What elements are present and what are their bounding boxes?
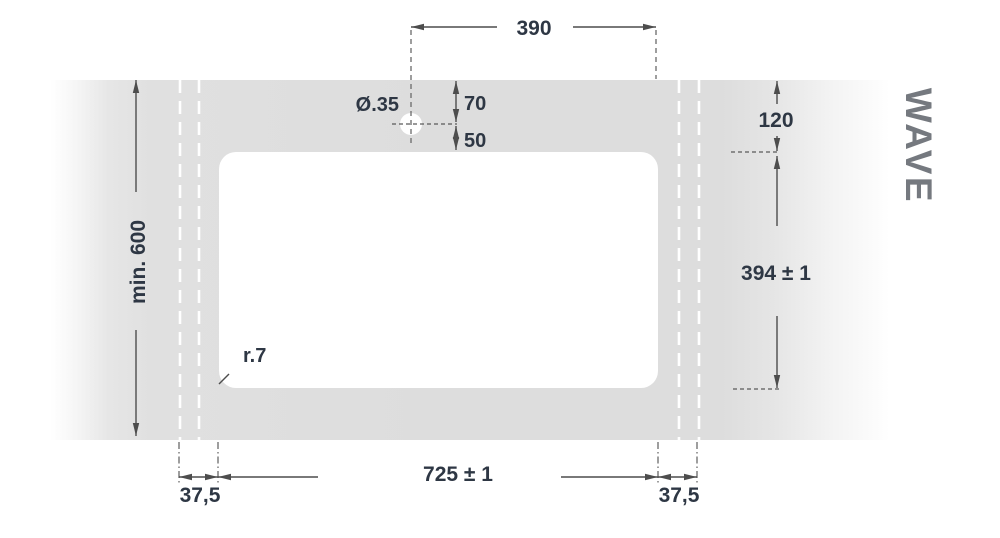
corner-radius-label: r.7 xyxy=(243,345,266,367)
cutout-opening xyxy=(219,152,658,388)
hole-offset-label: 390 xyxy=(516,17,551,40)
product-name-label: WAVE xyxy=(898,88,939,204)
dimension-overhang-right: 37,5 xyxy=(659,484,700,507)
edge-to-cutout-label: 120 xyxy=(758,109,793,132)
cutout-depth-label: 394 ± 1 xyxy=(741,262,811,285)
hole-to-cutout-label: 50 xyxy=(464,130,486,152)
hole-diameter-label: Ø.35 xyxy=(356,94,399,116)
technical-drawing-page: 390 Ø.35 70 50 120 xyxy=(0,0,1000,538)
min-depth-label: min. 600 xyxy=(127,220,150,304)
wave-cutout-drawing: 390 Ø.35 70 50 120 xyxy=(0,0,1000,538)
overhang-left-label: 37,5 xyxy=(180,484,221,507)
cutout-width-label: 725 ± 1 xyxy=(423,463,493,486)
dimension-overhang-left: 37,5 xyxy=(180,484,221,507)
hole-to-edge-label: 70 xyxy=(464,93,486,115)
dimension-cutout-width: 725 ± 1 xyxy=(179,463,697,486)
overhang-right-label: 37,5 xyxy=(659,484,700,507)
